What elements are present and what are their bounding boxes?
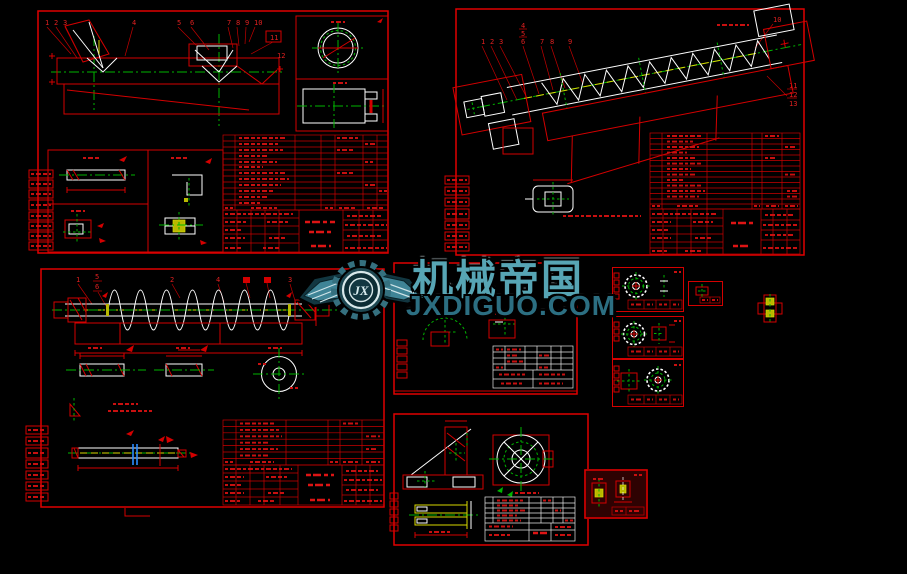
svg-text:4: 4	[216, 276, 220, 284]
svg-text:10: 10	[773, 16, 781, 24]
square-part-view	[617, 369, 641, 393]
sheet-mini-dark	[584, 469, 648, 519]
margin-strip	[26, 426, 48, 501]
svg-text:6: 6	[521, 38, 525, 46]
sheet-flange-part-3	[612, 359, 684, 407]
margin-strip	[397, 340, 407, 378]
long-shaft-detail	[68, 436, 198, 471]
pipe-side-view	[296, 79, 388, 131]
sheet-border	[689, 282, 723, 306]
svg-text:2: 2	[490, 38, 494, 46]
shaft-part-view	[409, 501, 481, 538]
callout: 11	[270, 34, 278, 42]
cad-workspace: 1 2 3 4 5 6 7 8 9 10 11 12	[0, 0, 907, 574]
sheet-bearing-bracket	[393, 413, 589, 546]
svg-text:2: 2	[170, 276, 174, 284]
margin-strip	[614, 322, 619, 341]
bom-table	[650, 133, 800, 209]
motor-detail-view	[525, 180, 641, 216]
bom-table	[223, 420, 384, 465]
title-strip	[628, 395, 682, 404]
flange-view	[489, 427, 553, 497]
margin-strip	[29, 170, 53, 250]
gear-view	[622, 272, 650, 300]
callout: 5	[177, 19, 181, 27]
svg-text:13: 13	[789, 100, 797, 108]
shaft-detail-box	[48, 150, 148, 204]
title-strip	[628, 347, 682, 356]
callout: 2	[54, 19, 58, 27]
callout-labels: 1 5 6 2 4 3	[76, 273, 296, 306]
sheet-border	[456, 9, 804, 255]
svg-text:3: 3	[288, 276, 292, 284]
sheet-conveyor-assembly: 1 2 3 4 5 6 7 8 9 10 11 12 13	[455, 8, 805, 256]
title-block	[650, 209, 800, 254]
title-block	[223, 210, 388, 252]
svg-text:1: 1	[76, 276, 80, 284]
sheet-small-part	[688, 281, 723, 306]
svg-text:9: 9	[568, 38, 572, 46]
callout: 10	[254, 19, 262, 27]
watermark-logo: JX 机械帝国 JXDIGUO.COM	[296, 250, 612, 332]
sheet-edge-mark	[125, 508, 150, 516]
sheet-flange-part-2	[612, 316, 684, 359]
shaft-section-detail-1	[66, 345, 146, 376]
svg-text:1: 1	[481, 38, 485, 46]
bracket-view	[403, 421, 483, 489]
callout: 8	[236, 19, 240, 27]
bom-table	[223, 135, 388, 210]
chamfer-detail	[70, 398, 174, 443]
svg-text:5: 5	[95, 273, 99, 281]
sheet-trough-assembly: 1 2 3 4 5 6 7 8 9 10 11 12	[37, 10, 389, 254]
svg-text:7: 7	[540, 38, 544, 46]
bracket-detail-box	[148, 150, 223, 252]
svg-text:6: 6	[95, 283, 99, 291]
svg-text:8: 8	[550, 38, 554, 46]
margin-strip	[614, 366, 619, 392]
logo-monogram: JX	[352, 283, 369, 298]
small-part-box	[48, 204, 148, 252]
title-block	[493, 346, 573, 388]
callout: 3	[63, 19, 67, 27]
part-cross-detail	[757, 294, 783, 324]
callout: 6	[190, 19, 194, 27]
callout: 4	[132, 19, 136, 27]
callout: 7	[227, 19, 231, 27]
domain-text: JXDIGUO.COM	[406, 290, 616, 322]
sheet-border	[38, 11, 388, 253]
title-strip	[700, 297, 720, 303]
callout: 1	[45, 19, 49, 27]
svg-text:3: 3	[499, 38, 503, 46]
gear-view	[621, 321, 647, 347]
title-block	[485, 497, 575, 541]
margin-strip	[445, 176, 469, 251]
trough-main-view	[49, 20, 285, 126]
gear-view	[644, 366, 672, 394]
side-centerline-view	[660, 275, 668, 297]
callout: 12	[277, 52, 285, 60]
callout: 9	[245, 19, 249, 27]
title-block	[223, 465, 384, 505]
title-strip	[628, 300, 682, 309]
shaft-end-circle-view	[253, 348, 305, 400]
flange-view	[296, 16, 388, 79]
hub-side-view	[652, 323, 675, 344]
sheet-flange-part-1	[612, 267, 684, 312]
